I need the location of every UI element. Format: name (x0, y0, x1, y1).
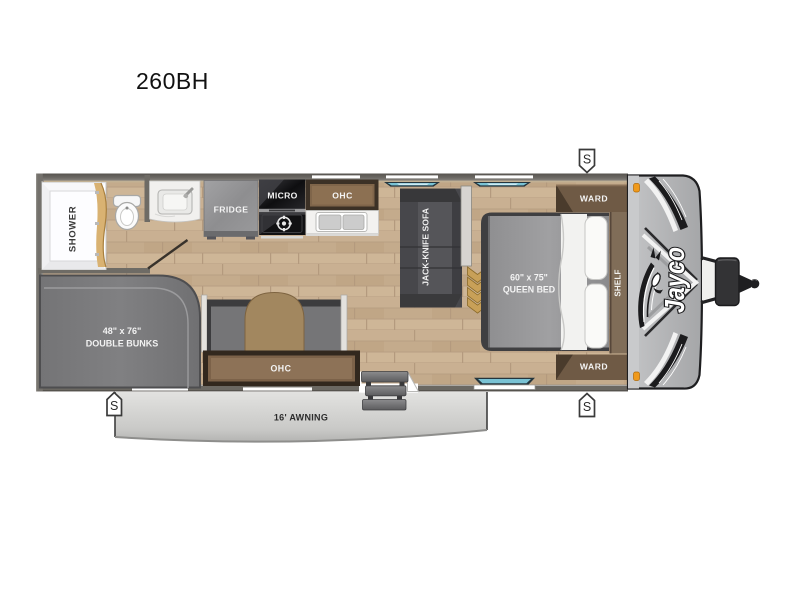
svg-text:260BH: 260BH (136, 68, 209, 94)
svg-text:DOUBLE BUNKS: DOUBLE BUNKS (86, 339, 159, 349)
svg-text:Jayco: Jayco (659, 247, 690, 313)
svg-text:SHOWER: SHOWER (68, 206, 79, 252)
svg-text:S: S (583, 153, 591, 167)
svg-text:48" x 76": 48" x 76" (103, 326, 142, 336)
svg-text:S: S (583, 400, 591, 414)
svg-text:FRIDGE: FRIDGE (214, 205, 249, 215)
svg-text:WARD: WARD (580, 194, 608, 204)
svg-text:MICRO: MICRO (267, 191, 297, 201)
svg-text:OHC: OHC (270, 364, 291, 374)
svg-text:S: S (110, 399, 118, 413)
svg-text:60" x 75": 60" x 75" (510, 273, 548, 283)
svg-text:JACK-KNIFE SOFA: JACK-KNIFE SOFA (421, 208, 431, 286)
svg-text:16' AWNING: 16' AWNING (274, 413, 328, 423)
svg-text:SHELF: SHELF (614, 269, 623, 296)
svg-text:QUEEN BED: QUEEN BED (503, 285, 555, 295)
svg-text:OHC: OHC (332, 191, 353, 201)
svg-text:WARD: WARD (580, 362, 608, 372)
